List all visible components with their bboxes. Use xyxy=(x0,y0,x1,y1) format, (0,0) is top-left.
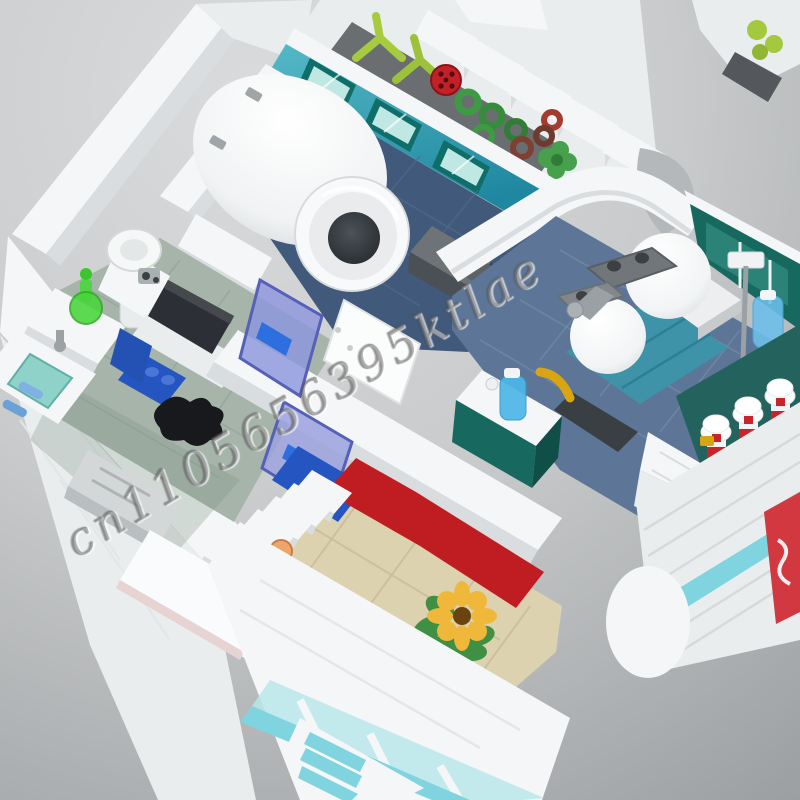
mri-bore xyxy=(328,212,380,264)
product-photo: cn1105656395ktlae xyxy=(0,0,800,800)
hospital-model-render xyxy=(0,0,800,800)
rounded-corner xyxy=(606,566,690,678)
blue-bottle xyxy=(500,376,526,420)
